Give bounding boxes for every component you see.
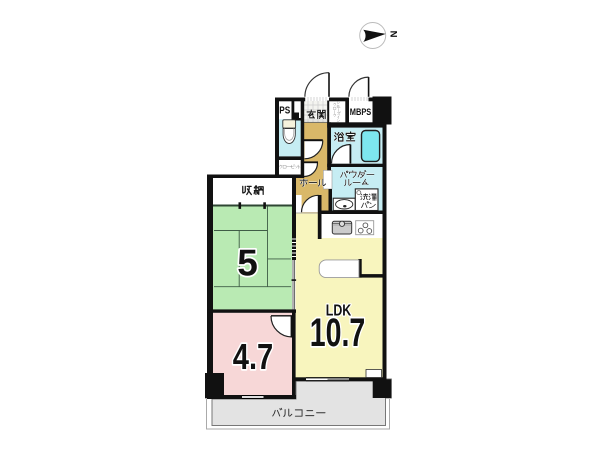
svg-text:4.7: 4.7 [233,336,274,377]
svg-text:N: N [388,31,399,38]
svg-text:10.7: 10.7 [310,311,366,355]
svg-text:PS: PS [279,105,290,117]
svg-text:5: 5 [237,243,258,284]
svg-text:MBPS: MBPS [350,107,372,117]
